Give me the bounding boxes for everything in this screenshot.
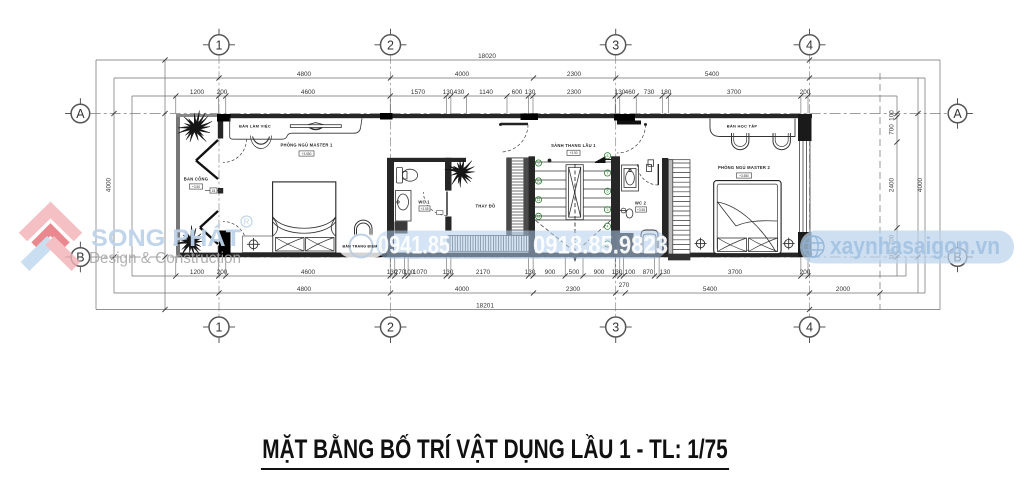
svg-text:xaynhasaigon.vn: xaynhasaigon.vn: [830, 233, 1000, 260]
svg-text:12: 12: [537, 215, 541, 219]
svg-text:2000: 2000: [836, 286, 851, 293]
svg-text:1: 1: [216, 38, 223, 52]
svg-text:3700: 3700: [727, 89, 742, 96]
svg-text:4600: 4600: [301, 89, 316, 96]
svg-text:5: 5: [607, 208, 609, 212]
svg-text:4000: 4000: [106, 177, 113, 192]
svg-text:WC 1: WC 1: [418, 200, 430, 205]
svg-text:BÀN LÀM VIỆC: BÀN LÀM VIỆC: [239, 124, 271, 129]
svg-text:4000: 4000: [455, 286, 470, 293]
svg-text:3: 3: [612, 38, 619, 52]
svg-text:100: 100: [625, 269, 636, 276]
svg-text:11: 11: [537, 198, 541, 202]
svg-text:3: 3: [612, 321, 619, 335]
svg-text:1200: 1200: [190, 269, 205, 276]
svg-text:200: 200: [800, 269, 811, 276]
svg-text:2: 2: [387, 321, 394, 335]
svg-text:18201: 18201: [476, 302, 494, 309]
svg-text:2400: 2400: [889, 177, 896, 192]
svg-text:900: 900: [545, 269, 556, 276]
svg-text:700: 700: [889, 124, 896, 135]
svg-text:1570: 1570: [411, 89, 426, 96]
svg-text:2: 2: [387, 38, 394, 52]
svg-text:4800: 4800: [297, 286, 312, 293]
svg-text:6: 6: [607, 190, 609, 194]
svg-text:4: 4: [806, 38, 813, 52]
svg-text:1140: 1140: [479, 89, 493, 96]
svg-text:2300: 2300: [566, 286, 581, 293]
svg-text:WC 2: WC 2: [635, 201, 647, 206]
svg-text:R: R: [244, 218, 250, 227]
svg-text:430: 430: [454, 89, 465, 96]
svg-text:4: 4: [806, 321, 813, 335]
svg-text:BÀN HỌC TẬP: BÀN HỌC TẬP: [727, 124, 758, 129]
svg-text:1070: 1070: [413, 269, 428, 276]
svg-text:+3.50: +3.50: [569, 151, 577, 155]
svg-text:4600: 4600: [301, 269, 316, 276]
svg-text:+3.55: +3.55: [637, 208, 645, 212]
svg-text:4: 4: [607, 225, 609, 229]
svg-text:1: 1: [216, 321, 223, 335]
svg-text:9: 9: [538, 161, 540, 165]
svg-text:130: 130: [443, 269, 454, 276]
svg-text:+3.50: +3.50: [192, 185, 200, 189]
svg-text:200: 200: [800, 89, 811, 96]
svg-text:+3.55: +3.55: [420, 207, 428, 211]
svg-text:2170: 2170: [476, 269, 491, 276]
svg-text:460: 460: [625, 89, 636, 96]
svg-text:PHÒNG NGỦ MASTER 1: PHÒNG NGỦ MASTER 1: [280, 143, 333, 148]
svg-text:Design & Construction: Design & Construction: [89, 250, 241, 267]
svg-text:A: A: [953, 107, 962, 121]
svg-text:5400: 5400: [705, 71, 720, 78]
svg-text:200: 200: [217, 269, 228, 276]
svg-text:100: 100: [889, 110, 896, 121]
svg-text:A: A: [76, 107, 85, 121]
svg-text:4000: 4000: [917, 177, 924, 192]
svg-text:0941.85: 0941.85: [378, 232, 450, 260]
svg-text:PHÒNG NGỦ MASTER 2: PHÒNG NGỦ MASTER 2: [718, 165, 771, 170]
svg-text:+3.550: +3.550: [739, 174, 749, 178]
svg-text:BÀN TRANG ĐIỂM: BÀN TRANG ĐIỂM: [342, 244, 377, 249]
svg-text:130: 130: [525, 269, 536, 276]
svg-text:600: 600: [512, 89, 523, 96]
svg-text:8: 8: [607, 154, 609, 158]
svg-text:2300: 2300: [567, 89, 582, 96]
svg-text:3700: 3700: [728, 269, 743, 276]
svg-text:+3.550: +3.550: [302, 152, 312, 156]
svg-text:7: 7: [607, 171, 609, 175]
svg-text:130: 130: [660, 269, 671, 276]
svg-text:500: 500: [569, 269, 580, 276]
svg-text:130: 130: [612, 269, 623, 276]
svg-text:200: 200: [217, 89, 228, 96]
svg-text:4000: 4000: [455, 71, 470, 78]
svg-text:10: 10: [537, 179, 541, 183]
svg-text:SONG PHÁT: SONG PHÁT: [91, 224, 241, 252]
svg-text:2300: 2300: [567, 71, 582, 78]
svg-text:730: 730: [644, 89, 655, 96]
svg-text:130: 130: [443, 89, 454, 96]
svg-text:18020: 18020: [478, 53, 496, 60]
svg-text:18: 18: [212, 189, 216, 193]
svg-text:SẢNH THANG LẦU 1: SẢNH THANG LẦU 1: [551, 143, 596, 148]
svg-text:900: 900: [594, 269, 605, 276]
svg-text:1200: 1200: [190, 89, 205, 96]
svg-text:5400: 5400: [703, 286, 718, 293]
svg-text:180: 180: [661, 89, 672, 96]
svg-text:270: 270: [619, 282, 630, 289]
svg-text:0918.85.9823: 0918.85.9823: [533, 232, 668, 260]
svg-text:870: 870: [643, 269, 654, 276]
svg-text:THAY ĐỒ: THAY ĐỒ: [476, 204, 496, 209]
svg-text:4800: 4800: [297, 71, 312, 78]
svg-text:BAN CÔNG: BAN CÔNG: [184, 177, 209, 182]
svg-text:130: 130: [525, 89, 536, 96]
